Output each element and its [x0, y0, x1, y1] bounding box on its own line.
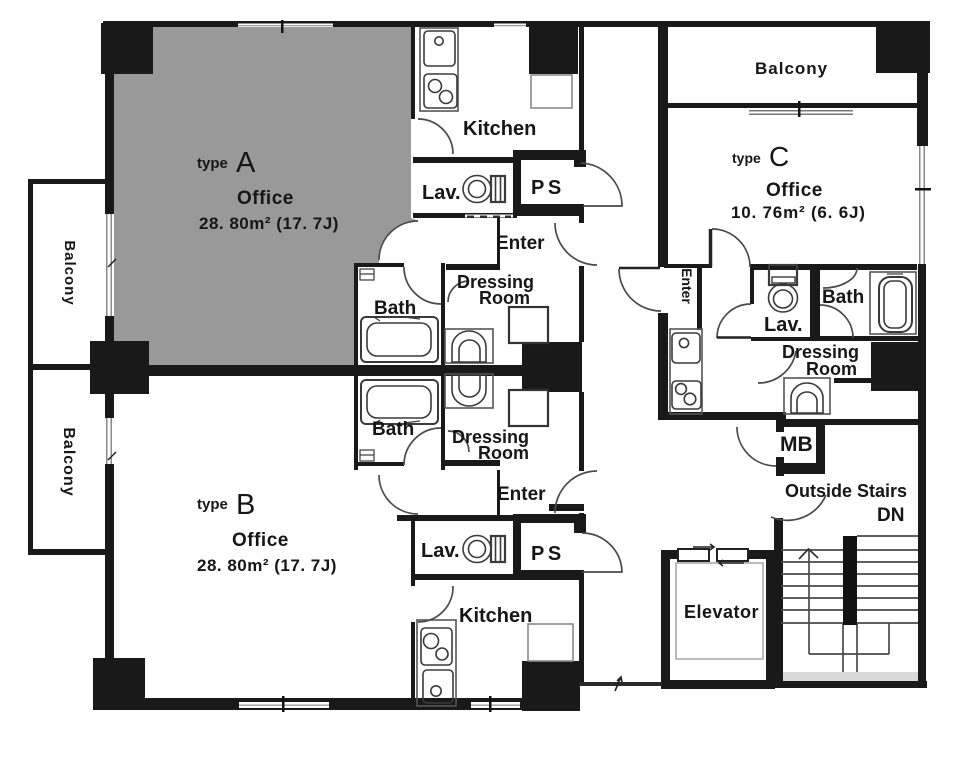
svg-text:Lav.: Lav. — [422, 182, 461, 204]
svg-text:Balcony: Balcony — [60, 427, 77, 496]
svg-text:PS: PS — [531, 543, 565, 565]
svg-text:C: C — [769, 141, 789, 172]
svg-text:PS: PS — [531, 177, 565, 199]
svg-text:Room: Room — [806, 359, 857, 379]
svg-text:28. 80m² (17. 7J): 28. 80m² (17. 7J) — [197, 556, 337, 575]
svg-text:B: B — [236, 489, 255, 521]
svg-text:Office: Office — [232, 530, 289, 551]
svg-text:Kitchen: Kitchen — [463, 118, 536, 140]
svg-text:Enter: Enter — [496, 233, 545, 254]
svg-text:type: type — [197, 155, 228, 172]
svg-text:Bath: Bath — [374, 298, 416, 319]
svg-text:Office: Office — [766, 180, 823, 201]
svg-text:type: type — [732, 150, 761, 166]
svg-text:Kitchen: Kitchen — [459, 605, 532, 627]
svg-text:DN: DN — [877, 505, 904, 526]
svg-text:Lav.: Lav. — [764, 314, 803, 336]
svg-text:MB: MB — [780, 433, 813, 456]
svg-text:Office: Office — [237, 188, 294, 209]
svg-text:10. 76m² (6. 6J): 10. 76m² (6. 6J) — [731, 203, 866, 222]
svg-text:A: A — [236, 147, 256, 179]
svg-text:Outside Stairs: Outside Stairs — [785, 481, 907, 501]
svg-text:28. 80m² (17. 7J): 28. 80m² (17. 7J) — [199, 214, 339, 233]
svg-text:Bath: Bath — [822, 287, 864, 308]
svg-text:Room: Room — [478, 443, 529, 463]
svg-text:Lav.: Lav. — [421, 540, 460, 562]
svg-text:Room: Room — [479, 288, 530, 308]
svg-text:Balcony: Balcony — [755, 59, 828, 78]
svg-text:Enter: Enter — [679, 268, 695, 304]
svg-text:Enter: Enter — [497, 484, 546, 505]
svg-text:type: type — [197, 496, 228, 513]
svg-text:Elevator: Elevator — [684, 602, 759, 622]
svg-text:Balcony: Balcony — [61, 240, 78, 305]
svg-text:Bath: Bath — [372, 419, 414, 440]
